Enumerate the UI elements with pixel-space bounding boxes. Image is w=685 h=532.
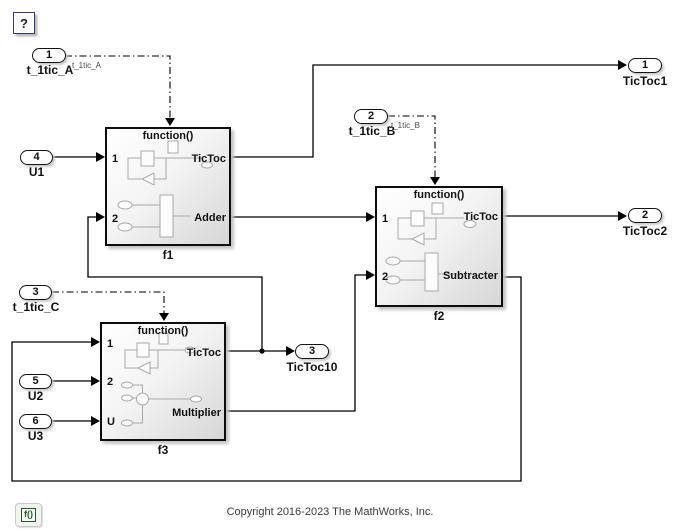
arrow-right-icon xyxy=(96,152,105,162)
subsystem-f2[interactable]: function() 1 2 TicToc Subtracter xyxy=(375,186,503,307)
output-port-icon xyxy=(191,396,202,402)
f1-outport-adder-label: Adder xyxy=(194,210,226,226)
wire-t1ticC-to-f3-trigger[interactable] xyxy=(52,292,169,321)
inport-number: 5 xyxy=(32,376,38,387)
wire-f2-subtracter-to-f3[interactable] xyxy=(12,277,521,481)
f1-name: f1 xyxy=(105,248,231,262)
f2-name: f2 xyxy=(375,309,503,323)
unit-delay-icon xyxy=(137,343,149,357)
f1-outport-tictoc-label: TicToc xyxy=(192,151,226,167)
input-port-icon xyxy=(122,382,133,388)
signal-label-t1ticA[interactable]: t_1tic_A xyxy=(72,61,101,70)
gain-icon xyxy=(138,362,150,374)
arrow-right-icon xyxy=(366,212,375,222)
gain-icon xyxy=(412,233,424,245)
arrow-right-icon xyxy=(618,60,627,70)
sum-block-icon xyxy=(160,195,173,237)
f2-outport-subtracter-label: Subtracter xyxy=(443,268,498,284)
input-port-icon xyxy=(122,420,133,426)
outport-tictoc10[interactable]: 3 xyxy=(295,344,329,359)
unit-delay-icon xyxy=(411,211,424,226)
inport-number: 3 xyxy=(32,287,38,298)
inport-t1ticB[interactable]: 2 xyxy=(354,109,388,124)
arrow-right-icon xyxy=(91,337,100,347)
f2-inport-2-label: 2 xyxy=(382,269,388,285)
input-port-icon xyxy=(122,395,133,401)
f3-name: f3 xyxy=(100,443,226,457)
inport-number: 2 xyxy=(368,111,374,122)
wire-u2-to-f3[interactable] xyxy=(52,376,100,386)
wire-f1-tictoc-to-tictoc1[interactable] xyxy=(231,60,627,157)
f2-outport-tictoc-label: TicToc xyxy=(464,209,498,225)
f1-trigger-label: function() xyxy=(107,130,229,142)
input-port-icon xyxy=(386,257,400,265)
subsystem-f3[interactable]: function() 1 2 U TicToc Multiplier xyxy=(100,322,226,441)
f3-contents-preview xyxy=(102,324,224,439)
arrow-down-icon xyxy=(159,313,169,321)
function-badge-icon: f() xyxy=(21,508,36,522)
outport-tictoc2-label: TicToc2 xyxy=(617,224,673,238)
sum-block-icon xyxy=(425,253,438,291)
outport-tictoc2[interactable]: 2 xyxy=(628,208,662,223)
outport-number: 3 xyxy=(309,346,315,357)
f1-inport-1-label: 1 xyxy=(112,151,118,167)
input-port-icon xyxy=(118,223,132,231)
outport-tictoc1[interactable]: 1 xyxy=(628,58,662,73)
arrow-down-icon xyxy=(165,118,175,126)
outport-number: 1 xyxy=(642,60,648,71)
f3-inport-u-label: U xyxy=(107,414,115,430)
subsystem-f1[interactable]: function() 1 2 TicToc Adder xyxy=(105,127,231,246)
arrow-right-icon xyxy=(618,211,627,221)
arrow-right-icon xyxy=(91,416,100,426)
inport-number: 4 xyxy=(33,152,39,163)
f3-inport-2-label: 2 xyxy=(107,374,113,390)
arrow-right-icon xyxy=(96,212,105,222)
wire-f2-tictoc-to-tictoc2[interactable] xyxy=(503,211,627,221)
inport-u3-label: U3 xyxy=(19,429,52,443)
inport-t1ticA[interactable]: 1 xyxy=(32,48,66,63)
arrow-right-icon xyxy=(286,346,295,356)
arrow-right-icon xyxy=(366,270,375,280)
inport-u2[interactable]: 5 xyxy=(19,374,52,389)
f2-inport-1-label: 1 xyxy=(382,211,388,227)
arrow-right-icon xyxy=(91,376,100,386)
product-block-icon xyxy=(137,393,149,405)
inport-t1ticC[interactable]: 3 xyxy=(19,285,52,300)
f3-outport-tictoc-label: TicToc xyxy=(187,345,221,361)
input-port-icon xyxy=(118,201,132,209)
inport-u2-label: U2 xyxy=(19,389,52,403)
wire-f1-adder-to-f2[interactable] xyxy=(231,212,375,222)
help-button[interactable]: ? xyxy=(13,12,35,34)
copyright-text: Copyright 2016-2023 The MathWorks, Inc. xyxy=(165,506,495,518)
trigger-port-icon xyxy=(168,141,178,153)
inport-u1[interactable]: 4 xyxy=(20,150,53,165)
unit-delay-icon xyxy=(141,151,154,166)
inport-number: 1 xyxy=(46,50,52,61)
trigger-port-icon xyxy=(432,203,443,214)
f2-contents-preview xyxy=(377,188,501,305)
function-badge[interactable]: f() xyxy=(15,503,42,527)
gain-icon xyxy=(142,173,154,185)
outport-tictoc1-label: TicToc1 xyxy=(617,74,673,88)
f3-outport-multiplier-label: Multiplier xyxy=(172,405,221,421)
f1-contents-preview xyxy=(107,129,229,244)
wire-f3-multiplier-to-f2[interactable] xyxy=(226,270,375,411)
inport-number: 6 xyxy=(32,416,38,427)
simulink-canvas: ? 1 t_1tic_A t_1tic_A 4 U1 2 t_1tic_B t_… xyxy=(0,0,685,532)
inport-u3[interactable]: 6 xyxy=(19,414,52,429)
arrow-down-icon xyxy=(430,177,440,185)
signal-label-t1ticB[interactable]: t_1tic_B xyxy=(391,121,420,130)
f3-inport-1-label: 1 xyxy=(107,336,113,352)
wire-u1-to-f1[interactable] xyxy=(53,152,105,162)
inport-u1-label: U1 xyxy=(20,165,53,179)
f1-inport-2-label: 2 xyxy=(112,211,118,227)
inport-t1ticC-label: t_1tic_C xyxy=(8,300,64,314)
outport-number: 2 xyxy=(642,210,648,221)
f3-trigger-label: function() xyxy=(102,325,224,337)
f2-trigger-label: function() xyxy=(377,189,501,201)
outport-tictoc10-label: TicToc10 xyxy=(283,360,341,374)
wire-u3-to-f3[interactable] xyxy=(52,416,100,426)
inport-t1ticA-label: t_1tic_A xyxy=(22,63,78,77)
